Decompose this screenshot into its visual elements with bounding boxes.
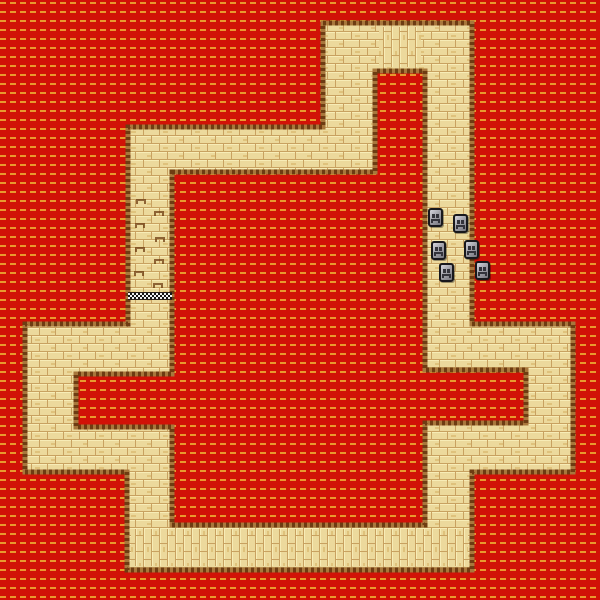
stone-frown-mouth xyxy=(456,225,465,229)
stone-frown-mouth xyxy=(431,219,440,223)
stone-eye-right xyxy=(483,267,486,271)
stone-frown-mouth xyxy=(467,251,476,255)
stone-frown-mouth xyxy=(442,274,451,278)
brick-crack-mark xyxy=(154,211,164,216)
brick-crack-mark xyxy=(134,271,144,276)
stone-eye-right xyxy=(461,220,464,224)
stone-face-sprite[interactable] xyxy=(428,208,443,227)
game-map-viewport[interactable] xyxy=(0,0,600,600)
stone-frown-mouth xyxy=(434,252,443,256)
rotated-brick-patch xyxy=(379,27,421,67)
brick-crack-mark xyxy=(155,237,165,242)
brick-track-layer xyxy=(0,0,600,600)
stone-eye-right xyxy=(436,214,439,218)
stone-eye-right xyxy=(447,269,450,273)
stone-eye-left xyxy=(479,267,482,271)
stone-face-sprite[interactable] xyxy=(453,214,468,233)
track-edge-base xyxy=(25,23,573,570)
stone-face-sprite[interactable] xyxy=(475,261,490,280)
stone-eye-right xyxy=(472,246,475,250)
brick-crack-mark xyxy=(153,283,163,288)
stone-eye-left xyxy=(468,246,471,250)
finish-line xyxy=(128,292,172,300)
stone-face-sprite[interactable] xyxy=(464,240,479,259)
rotated-brick-patch xyxy=(131,529,468,566)
brick-crack-mark xyxy=(135,223,145,228)
stone-face-sprite[interactable] xyxy=(431,241,446,260)
stone-eye-left xyxy=(443,269,446,273)
stone-eye-right xyxy=(439,247,442,251)
stone-eye-left xyxy=(457,220,460,224)
track-surface-rotated-bricks xyxy=(131,27,468,566)
brick-crack-mark xyxy=(135,247,145,252)
stone-eye-left xyxy=(435,247,438,251)
brick-crack-mark xyxy=(136,199,146,204)
track-edge-studs xyxy=(25,23,573,570)
stone-frown-mouth xyxy=(478,272,487,276)
track-surface xyxy=(25,23,573,570)
stone-eye-left xyxy=(432,214,435,218)
stone-face-sprite[interactable] xyxy=(439,263,454,282)
brick-crack-mark xyxy=(154,259,164,264)
